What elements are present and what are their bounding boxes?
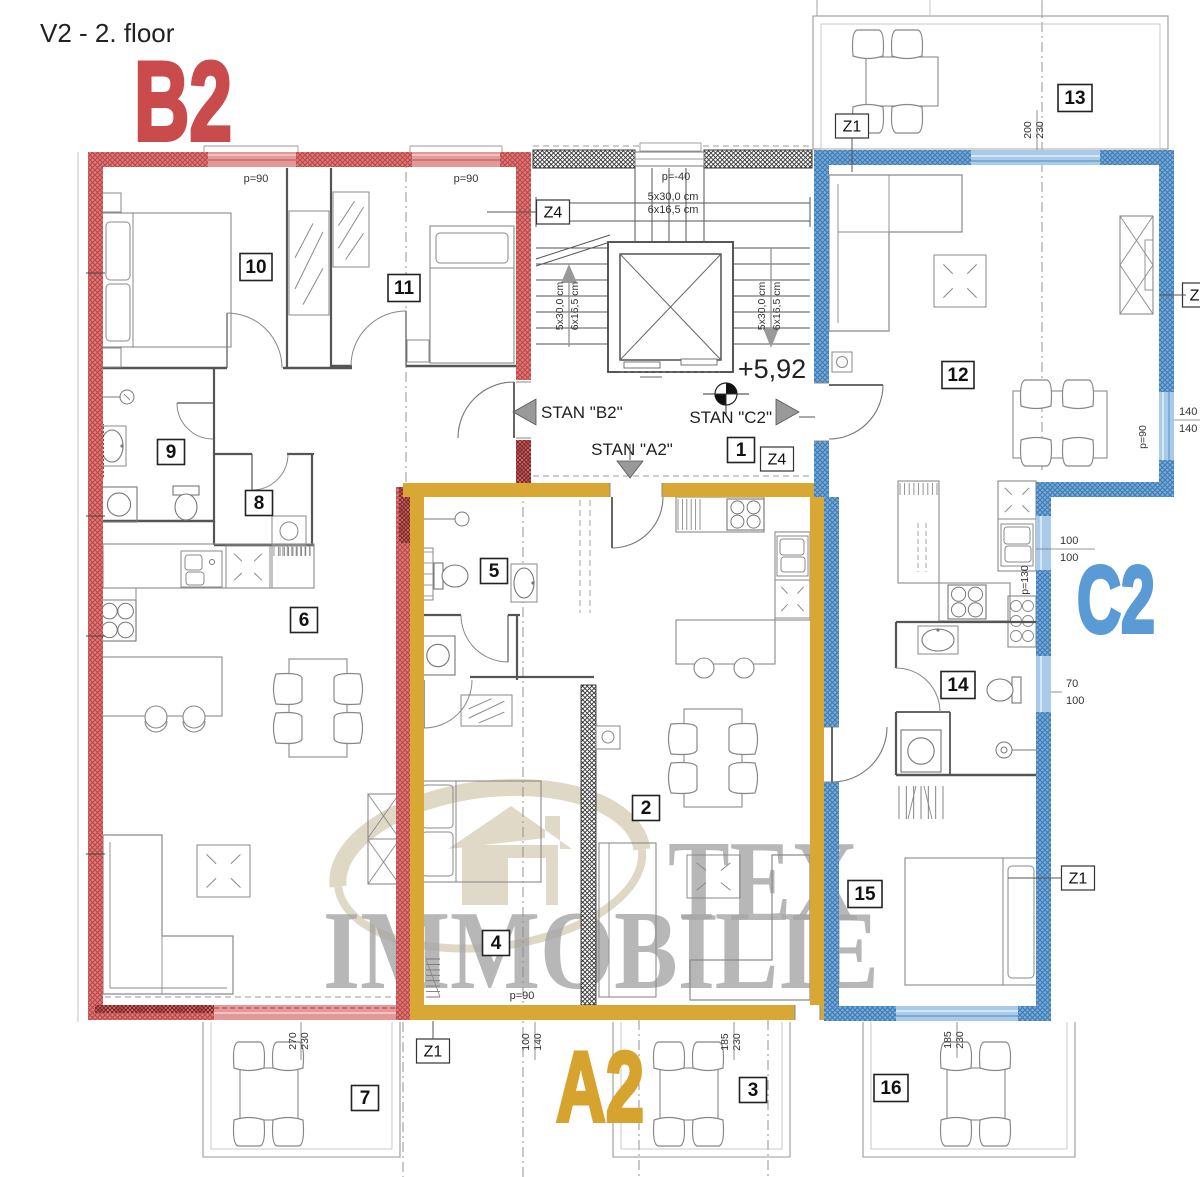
svg-text:p=90: p=90 [510, 990, 535, 1002]
svg-text:1: 1 [736, 440, 747, 461]
svg-text:5x30,0 cm: 5x30,0 cm [554, 282, 566, 331]
svg-text:STAN "A2": STAN "A2" [591, 440, 673, 459]
svg-text:100: 100 [1060, 535, 1078, 547]
svg-text:p=130: p=130 [1019, 565, 1031, 595]
svg-text:140: 140 [1179, 423, 1197, 435]
svg-text:4: 4 [491, 933, 502, 954]
svg-text:6x16,5 cm: 6x16,5 cm [648, 204, 699, 216]
svg-text:6x16,5 cm: 6x16,5 cm [569, 282, 581, 331]
svg-text:B2: B2 [134, 39, 232, 164]
svg-text:230: 230 [954, 1031, 966, 1049]
svg-text:185: 185 [719, 1033, 731, 1051]
svg-text:7: 7 [360, 1088, 371, 1109]
svg-text:12: 12 [947, 365, 968, 386]
svg-text:70: 70 [1066, 678, 1078, 690]
svg-text:140: 140 [532, 1033, 544, 1051]
svg-text:230: 230 [1034, 121, 1046, 139]
svg-text:5: 5 [489, 561, 500, 582]
svg-text:STAN "B2": STAN "B2" [541, 403, 623, 422]
svg-text:100: 100 [1066, 695, 1084, 707]
svg-text:185: 185 [942, 1031, 954, 1049]
svg-text:15: 15 [854, 884, 876, 905]
svg-text:16: 16 [880, 1078, 901, 1099]
svg-text:Z1: Z1 [1069, 871, 1088, 888]
svg-text:11: 11 [394, 278, 415, 299]
svg-text:STAN "C2": STAN "C2" [689, 408, 772, 427]
svg-text:9: 9 [166, 442, 177, 463]
svg-text:Z4: Z4 [768, 452, 787, 469]
svg-text:5x30,0 cm: 5x30,0 cm [648, 191, 699, 203]
svg-text:6x16,5 cm: 6x16,5 cm [771, 282, 783, 331]
svg-text:p=90: p=90 [454, 173, 479, 185]
svg-text:100: 100 [1060, 552, 1078, 564]
svg-text:140: 140 [1179, 406, 1197, 418]
svg-text:100: 100 [520, 1033, 532, 1051]
svg-text:p=90: p=90 [244, 173, 269, 185]
svg-text:p=90: p=90 [1137, 425, 1149, 449]
svg-text:Z1: Z1 [424, 1044, 443, 1061]
svg-text:200: 200 [1022, 121, 1034, 139]
svg-text:Z1: Z1 [1190, 288, 1200, 305]
svg-text:10: 10 [245, 257, 266, 278]
svg-text:13: 13 [1064, 88, 1085, 109]
svg-text:2: 2 [641, 798, 652, 819]
svg-text:14: 14 [947, 675, 969, 696]
svg-text:Z4: Z4 [544, 205, 563, 222]
svg-text:A2: A2 [556, 1031, 644, 1142]
svg-text:6: 6 [299, 610, 310, 631]
svg-text:270: 270 [287, 1032, 299, 1050]
svg-text:p=-40: p=-40 [662, 171, 690, 183]
svg-text:8: 8 [254, 493, 265, 514]
svg-text:Z1: Z1 [843, 119, 862, 136]
svg-text:230: 230 [731, 1033, 743, 1051]
svg-text:5x30,0 cm: 5x30,0 cm [756, 282, 768, 331]
svg-text:3: 3 [748, 1080, 759, 1101]
svg-text:C2: C2 [1077, 547, 1155, 653]
svg-text:+5,92: +5,92 [738, 354, 806, 384]
